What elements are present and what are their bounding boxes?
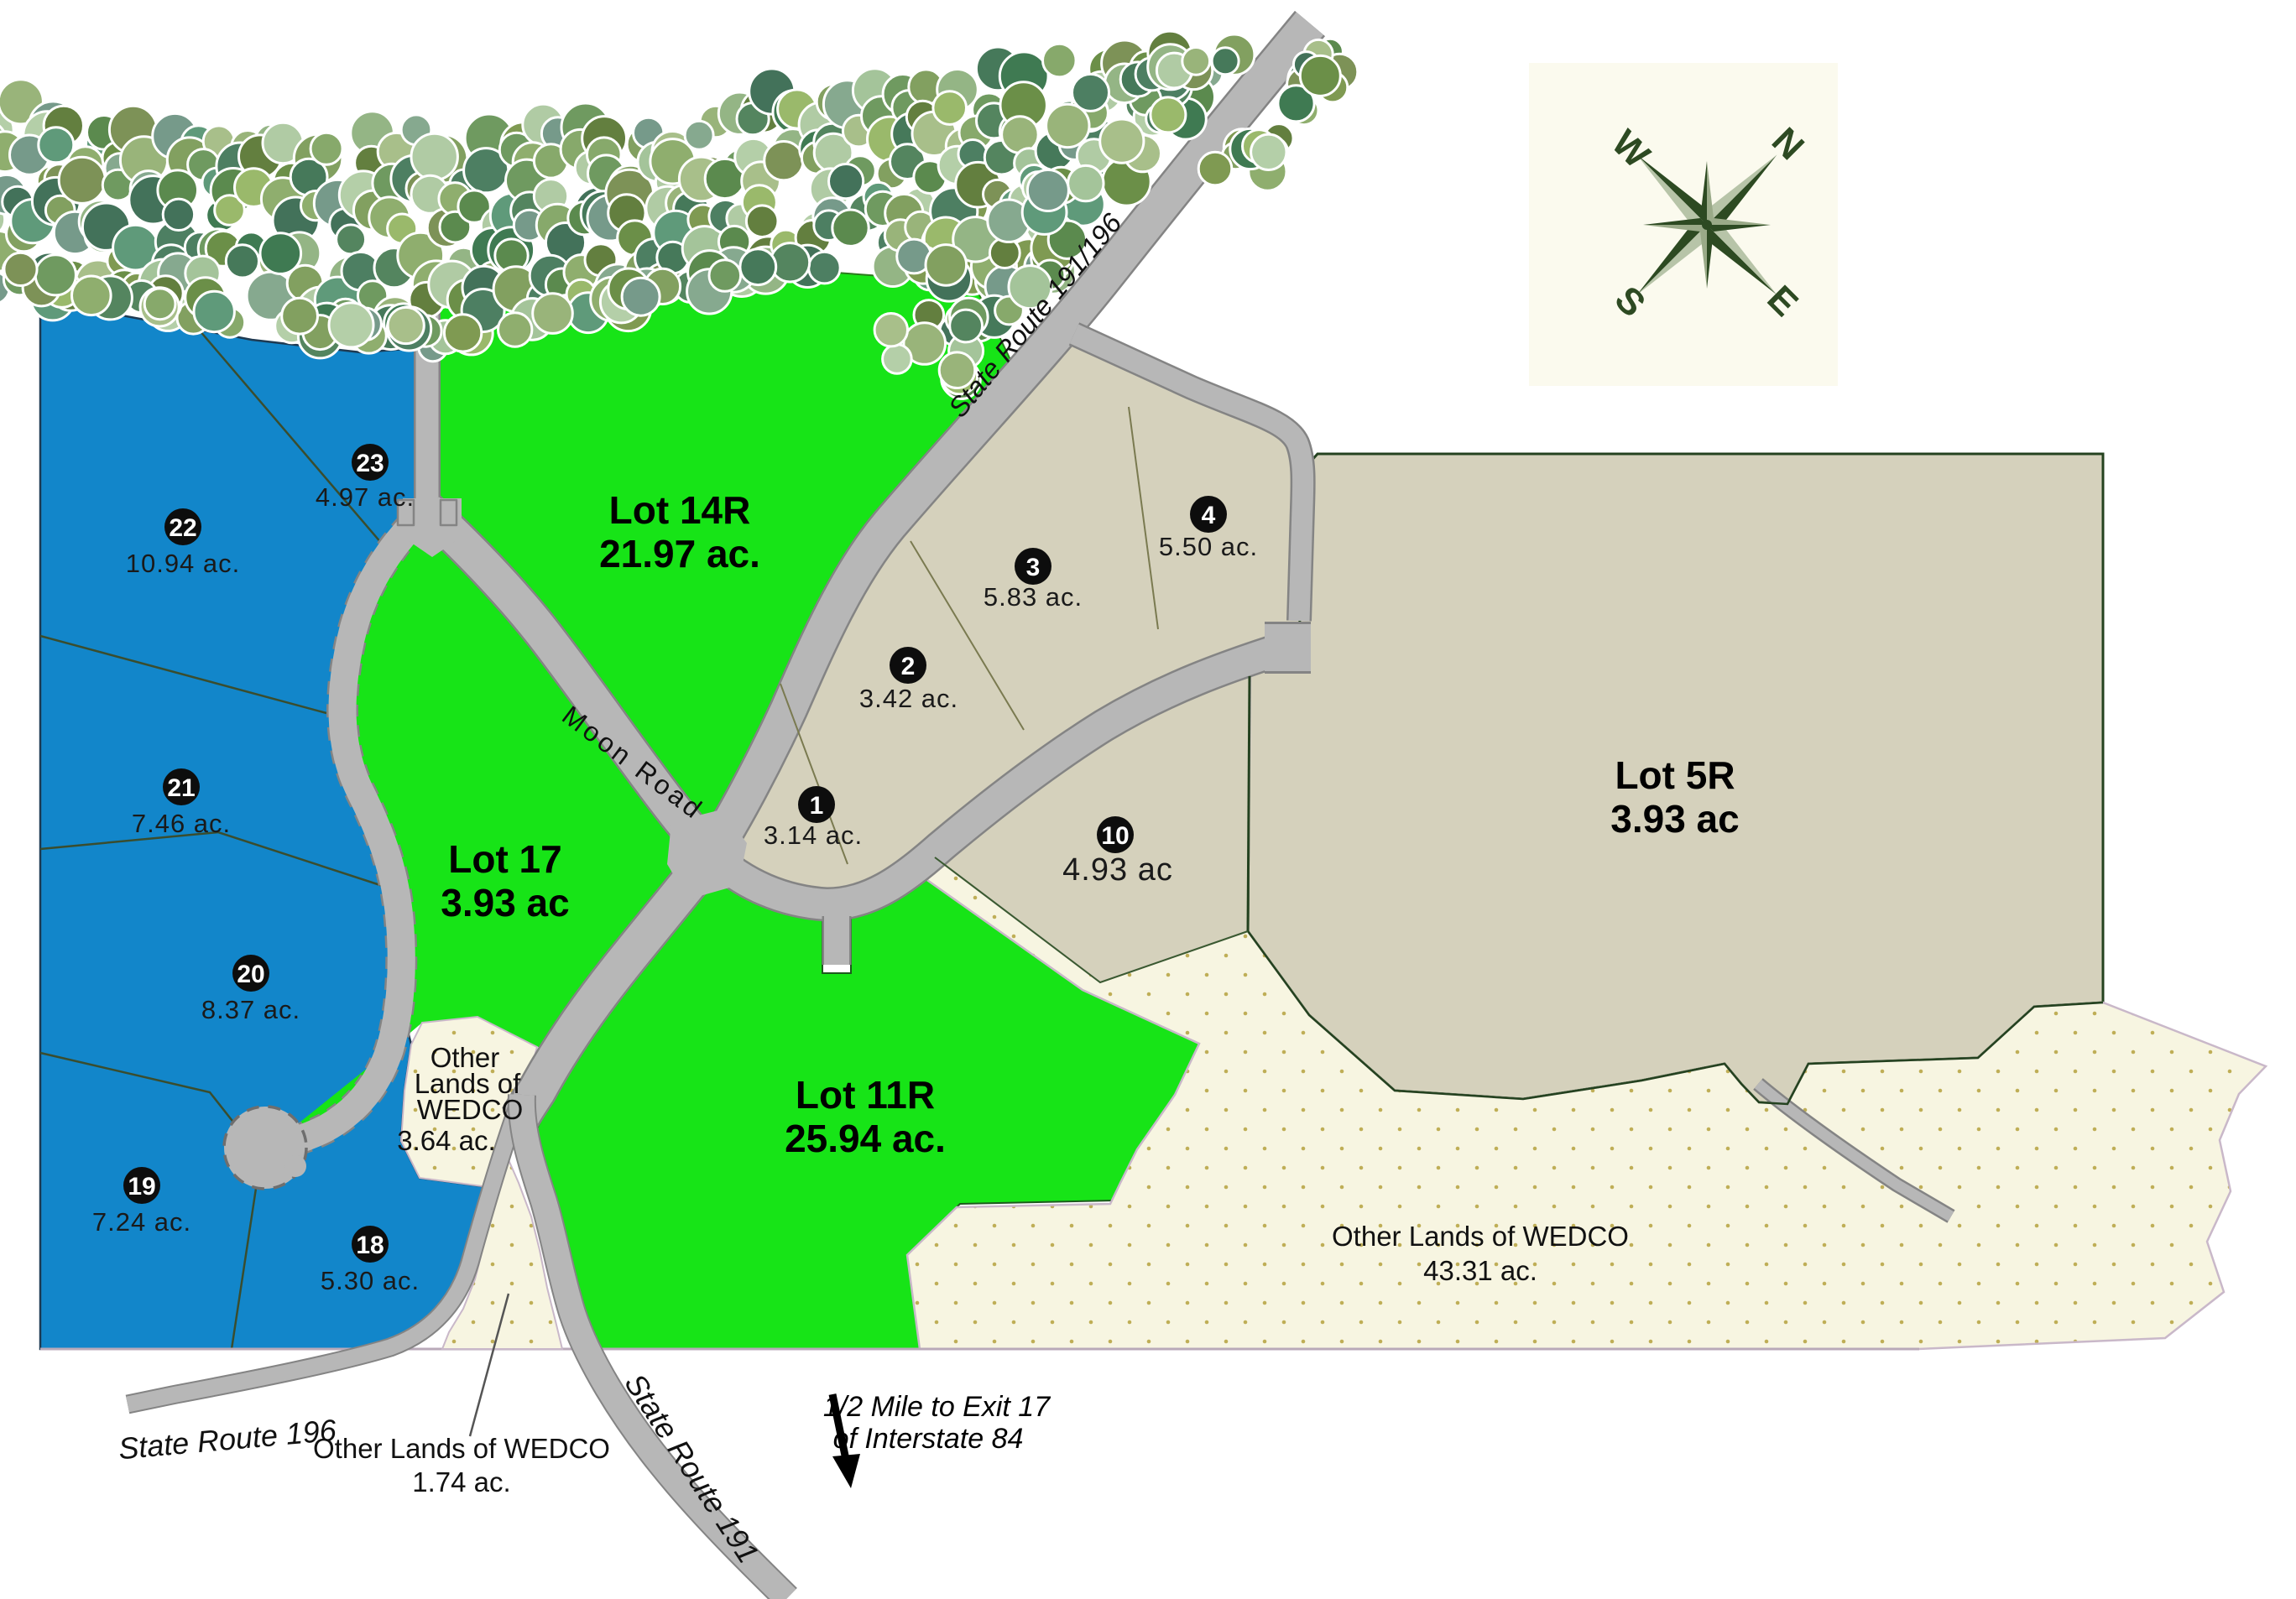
svg-text:Other Lands of WEDCO: Other Lands of WEDCO <box>1332 1221 1629 1252</box>
svg-text:Lot 14R: Lot 14R <box>609 488 751 532</box>
svg-text:7.46 ac.: 7.46 ac. <box>132 809 231 838</box>
svg-text:of Interstate 84: of Interstate 84 <box>833 1423 1024 1455</box>
svg-text:1.74 ac.: 1.74 ac. <box>412 1466 510 1497</box>
svg-text:5.83 ac.: 5.83 ac. <box>984 582 1083 612</box>
svg-text:Lot 5R: Lot 5R <box>1615 753 1735 797</box>
svg-text:WEDCO: WEDCO <box>417 1094 524 1125</box>
svg-text:3: 3 <box>1026 554 1041 581</box>
svg-text:Lot 11R: Lot 11R <box>796 1073 935 1117</box>
svg-text:5.30 ac.: 5.30 ac. <box>321 1266 420 1295</box>
svg-text:19: 19 <box>128 1173 155 1201</box>
svg-text:8.37 ac.: 8.37 ac. <box>201 995 300 1024</box>
svg-text:1/2 Mile to Exit 17: 1/2 Mile to Exit 17 <box>823 1391 1051 1423</box>
svg-text:10.94 ac.: 10.94 ac. <box>126 549 241 578</box>
svg-text:Other Lands of WEDCO: Other Lands of WEDCO <box>313 1433 610 1464</box>
svg-text:10: 10 <box>1101 822 1129 850</box>
svg-text:7.24 ac.: 7.24 ac. <box>92 1207 191 1237</box>
svg-text:4.93 ac: 4.93 ac <box>1062 852 1173 888</box>
svg-text:21: 21 <box>167 774 195 802</box>
svg-text:25.94 ac.: 25.94 ac. <box>785 1117 946 1160</box>
svg-text:1: 1 <box>810 792 824 820</box>
svg-text:22: 22 <box>169 514 196 542</box>
svg-text:3.93 ac: 3.93 ac <box>441 881 569 925</box>
svg-text:Lot 17: Lot 17 <box>448 837 561 881</box>
svg-text:4.97 ac.: 4.97 ac. <box>316 482 415 512</box>
svg-text:5.50 ac.: 5.50 ac. <box>1159 532 1258 561</box>
svg-text:23: 23 <box>356 450 384 477</box>
svg-text:20: 20 <box>237 961 264 988</box>
svg-text:21.97 ac.: 21.97 ac. <box>599 532 760 576</box>
svg-text:3.42 ac.: 3.42 ac. <box>859 684 958 713</box>
svg-text:3.64 ac.: 3.64 ac. <box>397 1125 495 1156</box>
svg-text:3.14 ac.: 3.14 ac. <box>764 820 863 850</box>
svg-text:2: 2 <box>901 653 916 680</box>
svg-text:18: 18 <box>356 1232 384 1259</box>
svg-text:4: 4 <box>1202 502 1216 529</box>
svg-text:43.31 ac.: 43.31 ac. <box>1423 1255 1537 1286</box>
svg-text:3.93 ac: 3.93 ac <box>1610 797 1739 841</box>
